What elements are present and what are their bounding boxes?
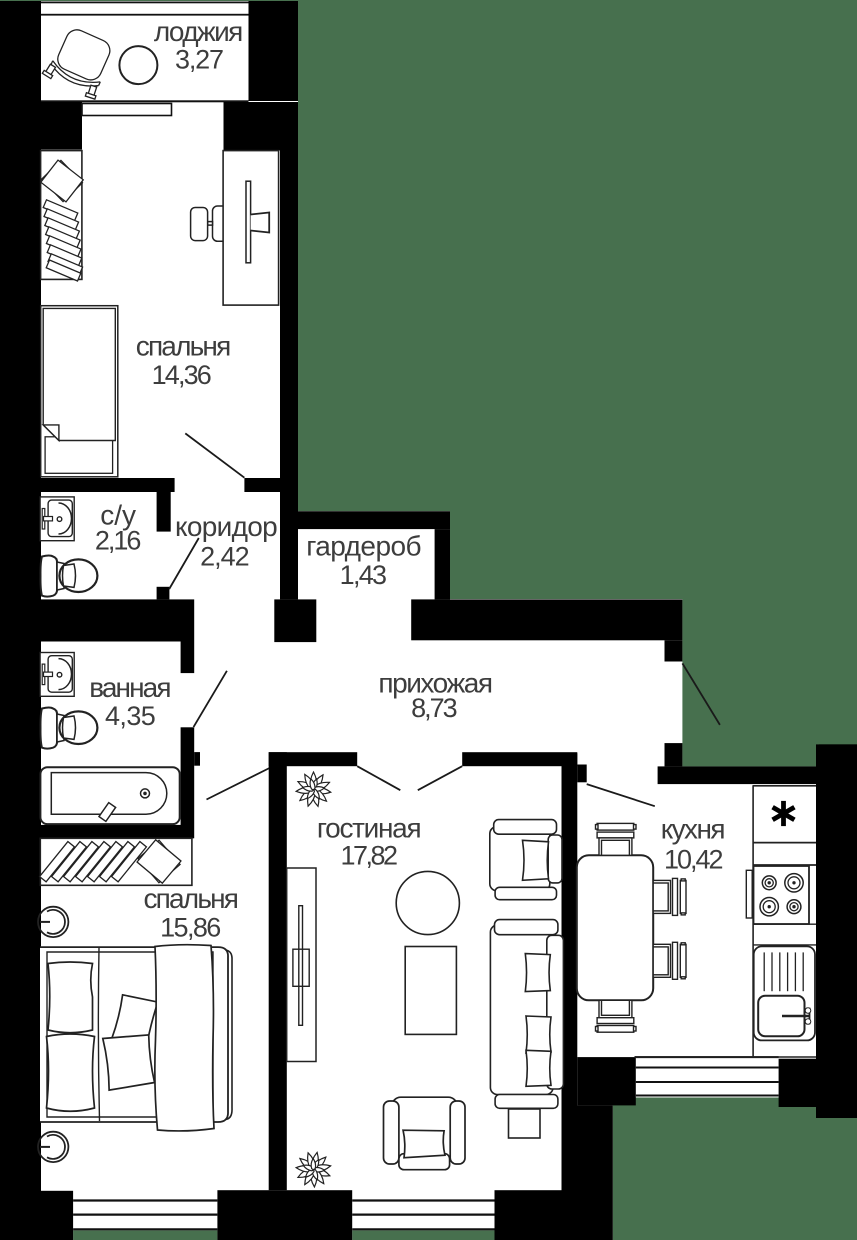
svg-text:3,27: 3,27 (175, 45, 223, 75)
svg-text:17,82: 17,82 (340, 841, 397, 871)
svg-text:15,86: 15,86 (160, 912, 220, 942)
svg-text:2,16: 2,16 (95, 526, 141, 556)
svg-text:14,36: 14,36 (152, 360, 211, 390)
svg-text:лоджия: лоджия (154, 16, 242, 47)
svg-text:2,42: 2,42 (200, 542, 249, 572)
svg-text:коридор: коридор (175, 511, 277, 542)
svg-text:кухня: кухня (661, 814, 725, 845)
svg-text:4,35: 4,35 (105, 701, 155, 731)
svg-text:10,42: 10,42 (664, 844, 723, 874)
svg-text:1,43: 1,43 (340, 560, 386, 590)
svg-text:гостиная: гостиная (317, 812, 421, 843)
svg-text:гардероб: гардероб (306, 530, 421, 561)
svg-text:спальня: спальня (143, 883, 237, 914)
svg-text:ванная: ванная (89, 672, 170, 703)
svg-text:8,73: 8,73 (411, 693, 457, 723)
svg-text:спальня: спальня (136, 331, 230, 362)
